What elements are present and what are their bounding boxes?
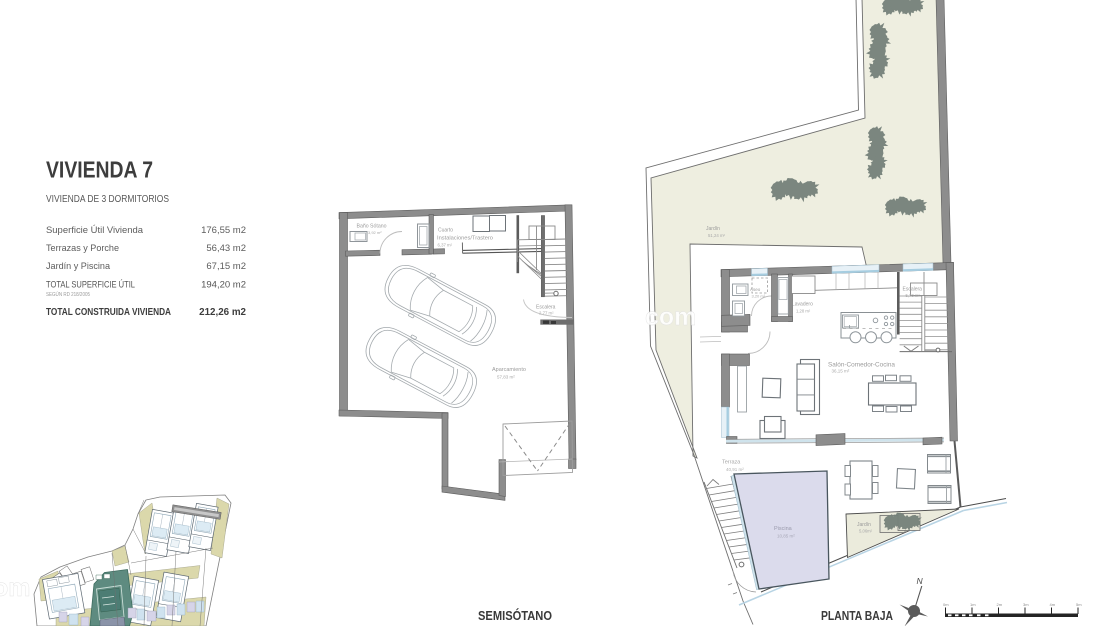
svg-text:3m: 3m <box>1023 602 1029 607</box>
svg-text:4m: 4m <box>1050 602 1056 607</box>
svg-text:194,20 m2: 194,20 m2 <box>201 280 246 291</box>
svg-text:10,85 m²: 10,85 m² <box>777 534 795 539</box>
svg-text:5m: 5m <box>1076 602 1082 607</box>
svg-text:SEGÚN RD 218/2005: SEGÚN RD 218/2005 <box>46 291 90 298</box>
svg-text:6,37 m²: 6,37 m² <box>438 243 453 248</box>
svg-text:0m: 0m <box>943 602 949 607</box>
svg-text:57,83 m²: 57,83 m² <box>497 375 515 380</box>
svg-text:Jardín: Jardín <box>857 522 871 528</box>
svg-text:51,24 m²: 51,24 m² <box>708 233 726 238</box>
svg-text:Lavadero: Lavadero <box>792 302 813 308</box>
svg-text:Baño Sótano: Baño Sótano <box>357 224 387 230</box>
svg-text:212,26 m2: 212,26 m2 <box>199 307 246 318</box>
svg-text:36,15 m²: 36,15 m² <box>832 369 850 374</box>
svg-text:Piscina: Piscina <box>774 526 793 532</box>
svg-text:SEMISÓTANO: SEMISÓTANO <box>478 608 552 623</box>
svg-text:1,28 m²: 1,28 m² <box>796 309 811 314</box>
svg-text:Aseo: Aseo <box>750 287 761 292</box>
svg-text:Instalaciones/Trastero: Instalaciones/Trastero <box>437 236 493 242</box>
svg-text:3,20 m²: 3,20 m² <box>752 294 766 299</box>
svg-text:2m: 2m <box>997 602 1003 607</box>
svg-text:Terraza: Terraza <box>722 460 741 466</box>
svg-text:3,92 m²: 3,92 m² <box>368 230 382 235</box>
svg-text:40,91 m²: 40,91 m² <box>726 467 744 472</box>
svg-text:56,43 m2: 56,43 m2 <box>206 243 246 254</box>
svg-text:5,70 m²: 5,70 m² <box>906 293 921 298</box>
svg-text:5,06m²: 5,06m² <box>859 529 873 534</box>
svg-text:Jardín y Piscina: Jardín y Piscina <box>46 261 111 272</box>
svg-text:2,77 m²: 2,77 m² <box>539 311 554 316</box>
svg-text:om: om <box>0 574 31 602</box>
svg-text:Superficie Útil Vivienda: Superficie Útil Vivienda <box>46 225 144 236</box>
svg-text:Aparcamiento: Aparcamiento <box>492 367 526 373</box>
svg-text:VIVIENDA DE 3 DORMITORIOS: VIVIENDA DE 3 DORMITORIOS <box>46 193 169 205</box>
svg-text:Cuarto: Cuarto <box>438 228 453 234</box>
svg-text:TOTAL CONSTRUIDA VIVIENDA: TOTAL CONSTRUIDA VIVIENDA <box>46 307 171 318</box>
svg-text:VIVIENDA 7: VIVIENDA 7 <box>46 157 153 183</box>
svg-text:1m: 1m <box>970 602 976 607</box>
svg-text:Terrazas y Porche: Terrazas y Porche <box>46 243 119 254</box>
svg-text:TOTAL SUPERFICIE ÚTIL: TOTAL SUPERFICIE ÚTIL <box>46 280 135 291</box>
svg-text:PLANTA BAJA: PLANTA BAJA <box>821 608 893 623</box>
svg-text:67,15 m2: 67,15 m2 <box>206 261 246 272</box>
svg-text:N: N <box>917 576 924 586</box>
svg-text:Jardín: Jardín <box>706 226 720 232</box>
svg-text:com: com <box>645 303 696 331</box>
svg-text:Escalera: Escalera <box>903 287 923 293</box>
svg-text:176,55 m2: 176,55 m2 <box>201 225 246 236</box>
